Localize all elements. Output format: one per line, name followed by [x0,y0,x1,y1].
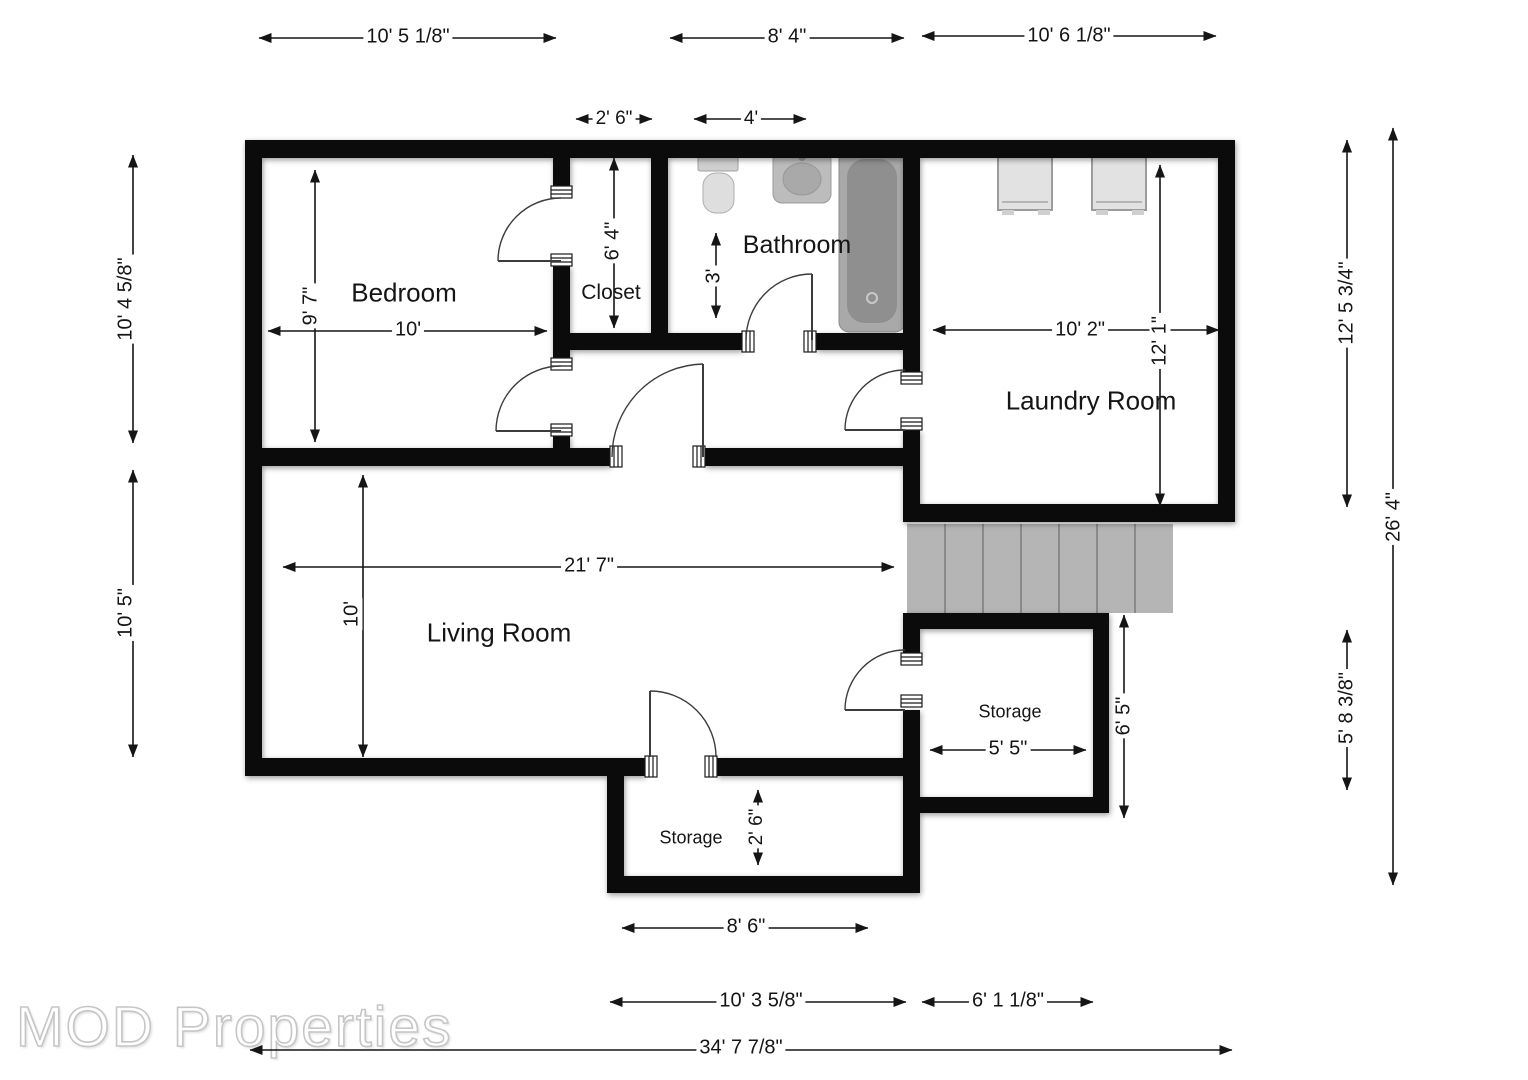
wall-closet-right [651,140,668,350]
wall-hall-laundry-lower [903,430,920,522]
dim-label-storage-right-width: 5' 5" [986,739,1031,760]
room-label-living: Living Room [427,619,572,646]
wall-storage-right-top [903,613,1109,629]
sink [773,151,831,203]
dim-label-right-storage-height: 5' 8 3/8" [1337,669,1358,747]
dimension-lines [133,36,1393,1050]
dim-label-bottom-right: 6' 1 1/8" [969,991,1047,1012]
dim-label-laundry-width: 10' 2" [1052,320,1108,341]
door-bathroom [746,274,812,340]
wall-exterior-top [245,140,1235,158]
room-label-storage-bottom: Storage [659,829,722,848]
wall-closet-bottom [553,333,668,350]
room-label-bathroom: Bathroom [743,232,851,258]
dim-label-bedroom-height: 9' 7" [301,284,322,329]
floor-plan: MOD Properties [0,0,1528,1080]
room-label-bedroom: Bedroom [351,279,457,306]
door-bedroom-hall [496,366,561,431]
dim-label-closet-width: 2' 6" [593,109,636,129]
dim-label-bedroom-width: 10' [392,320,424,341]
wall-storage-right-right [1093,613,1109,813]
dim-label-storage-right-height: 6' 5" [1114,694,1135,739]
dim-label-closet-height: 6' 4" [603,219,624,264]
dim-label-top-laundry: 10' 6 1/8" [1024,26,1113,47]
dim-label-bath-clearance: 3' [704,266,725,287]
room-label-closet: Closet [581,282,641,304]
dim-label-storage-bottom-width: 8' 6" [724,917,769,938]
dryer [1092,154,1146,215]
dim-label-bottom-left: 10' 3 5/8" [716,991,805,1012]
dim-label-total-width: 34' 7 7/8" [696,1038,785,1059]
stairs [907,524,1173,613]
room-label-storage-right: Storage [978,703,1041,722]
wall-storage-right-bottom [903,797,1109,813]
wall-bathroom-bottom-left [651,333,742,350]
dim-label-right-total-height: 26' 4" [1384,489,1405,545]
dim-label-storage-bottom-height: 2' 6" [747,806,767,849]
door-closet [498,198,561,261]
wall-bedroom-right-upper [553,140,570,186]
dim-label-top-bathroom: 8' 4" [765,27,810,48]
wall-storage-bottom-left [607,758,624,893]
door-laundry [845,370,905,430]
toilet [698,156,738,213]
dim-label-bath-front-width: 4' [741,109,761,129]
door-storage-right [845,650,905,710]
dim-label-left-upper: 10' 4 5/8" [116,254,137,343]
wall-bathroom-bottom-right [816,333,920,350]
dim-label-laundry-height: 12' 1" [1150,313,1171,369]
wall-storage-bottom-top [717,758,903,776]
walls [245,140,1235,893]
laundry-appliances [998,154,1146,215]
door-storage-bottom [650,691,716,757]
stairs-tread-area [907,524,1173,613]
wall-living-bottom [245,758,645,776]
washer [998,154,1052,215]
wall-storage-bottom-bottom [607,876,920,893]
dim-label-living-width: 21' 7" [561,556,617,577]
dim-label-top-bedroom: 10' 5 1/8" [363,27,452,48]
dim-label-left-lower: 10' 5" [116,585,137,641]
room-label-laundry: Laundry Room [1006,387,1177,414]
wall-living-top-left [245,448,610,466]
dim-label-right-laundry-height: 12' 5 3/4" [1337,258,1358,347]
wall-laundry-bottom [903,504,1235,522]
door-living-hall [612,364,703,457]
dim-label-living-height: 10' [342,598,363,630]
wall-exterior-right [1218,140,1235,522]
wall-living-top-right [705,448,920,466]
